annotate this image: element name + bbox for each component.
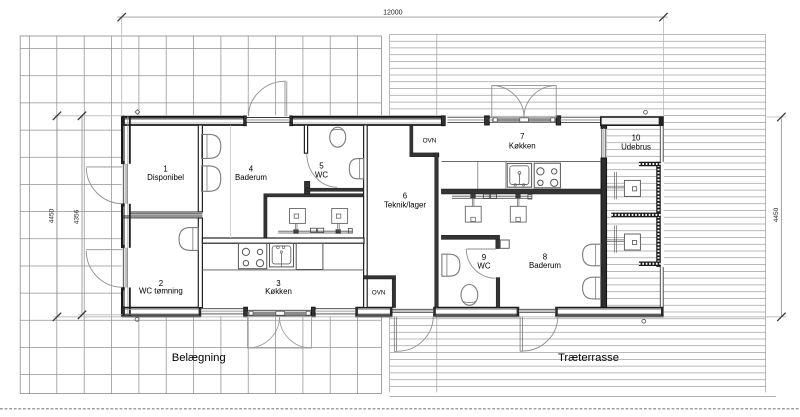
svg-text:4450: 4450 xyxy=(49,208,56,223)
svg-text:Baderum: Baderum xyxy=(529,261,561,270)
svg-text:OVN: OVN xyxy=(372,289,385,296)
svg-text:Disponibel: Disponibel xyxy=(147,173,184,182)
svg-text:4356: 4356 xyxy=(74,209,81,224)
svg-text:WC: WC xyxy=(315,170,328,179)
svg-text:Udebrus: Udebrus xyxy=(621,143,651,152)
svg-text:Køkken: Køkken xyxy=(265,287,292,296)
svg-text:5: 5 xyxy=(319,162,324,171)
svg-text:12000: 12000 xyxy=(383,10,403,17)
svg-text:WC tømning: WC tømning xyxy=(139,286,183,295)
svg-text:Træterrasse: Træterrasse xyxy=(558,352,619,364)
svg-text:7: 7 xyxy=(520,132,524,141)
svg-text:10: 10 xyxy=(632,133,641,142)
svg-text:Belægning: Belægning xyxy=(172,352,226,364)
svg-text:Køkken: Køkken xyxy=(509,142,536,151)
svg-text:OVN: OVN xyxy=(423,137,437,144)
svg-text:4450: 4450 xyxy=(773,207,780,222)
svg-text:WC: WC xyxy=(477,261,490,270)
svg-text:6: 6 xyxy=(403,192,408,201)
svg-text:Teknik/lager: Teknik/lager xyxy=(384,201,426,210)
svg-text:Baderum: Baderum xyxy=(235,173,267,182)
svg-text:8: 8 xyxy=(543,252,548,261)
